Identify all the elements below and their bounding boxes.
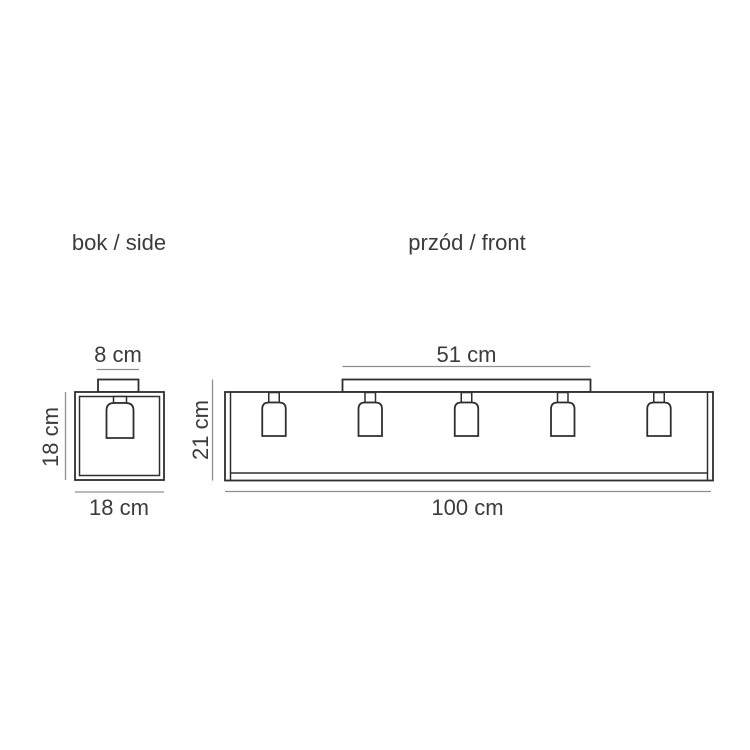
side-bulb-shade [107,403,134,438]
side-width-label: 18 cm [89,496,149,520]
side-canopy [98,380,139,393]
bulb-neck-2 [365,393,376,403]
front-canopy-width-label: 51 cm [437,343,497,367]
front-canopy [343,380,591,393]
lamp-dimension-drawing [0,0,750,750]
front-height-label: 21 cm [189,400,213,460]
side-canopy-width-label: 8 cm [94,343,142,367]
bulb-neck-5 [654,393,665,403]
bulb-neck-4 [558,393,569,403]
bulb-shade-2 [359,403,383,437]
front-width-label: 100 cm [431,496,503,520]
bulb-neck-1 [269,393,280,403]
front-view-drawing [225,380,713,481]
bulb-shade-1 [262,403,286,437]
diagram-canvas: bok / side przód / front [0,0,750,750]
side-bulb-neck [114,397,127,404]
bulb-shade-5 [647,403,671,437]
bulb-shade-3 [455,403,479,437]
bulb-neck-3 [461,393,472,403]
side-view-drawing [75,380,164,481]
bulb-shade-4 [551,403,575,437]
side-height-label: 18 cm [39,407,63,467]
